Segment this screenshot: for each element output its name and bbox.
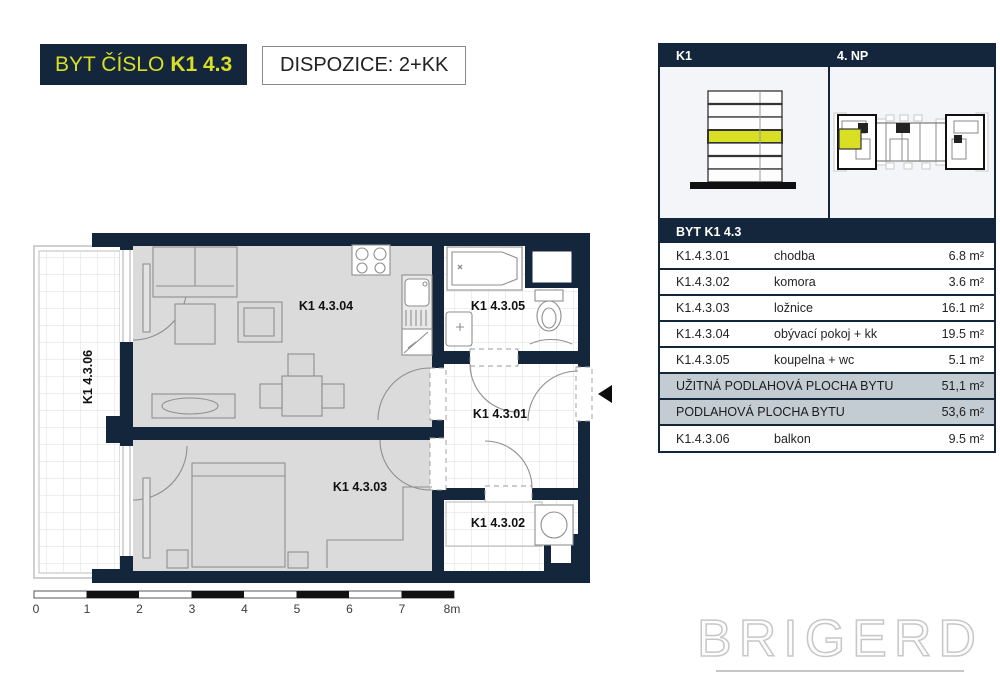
highlighted-unit — [839, 129, 861, 149]
shaft — [532, 251, 572, 283]
building-base — [690, 182, 796, 189]
highlighted-floor — [708, 130, 782, 143]
locator-diagrams — [660, 67, 994, 220]
building-elevation-cell — [660, 67, 830, 218]
disposition-badge: DISPOZICE: 2+KK — [262, 46, 466, 85]
info-panel: K1 4. NP — [658, 43, 996, 453]
nightstand-symbol — [167, 550, 188, 568]
site-plan-cell — [830, 67, 998, 218]
room-label-storage: K1 4.3.02 — [471, 516, 525, 530]
scale-tick: 2 — [136, 602, 143, 616]
area-row: K1.4.3.01 chodba 6.8 m² — [660, 243, 994, 269]
table-title: BYT K1 4.3 — [676, 225, 741, 239]
scale-tick: 6 — [346, 602, 353, 616]
room-label-living: K1 4.3.04 — [299, 299, 353, 313]
apartment-number: K1 4.3 — [170, 53, 232, 77]
area-row: K1.4.3.06 balkon 9.5 m² — [660, 425, 994, 451]
armchair-symbol — [175, 304, 215, 344]
area-row: K1.4.3.03 ložnice 16.1 m² — [660, 295, 994, 321]
washbasin-symbol — [446, 312, 472, 346]
room-label-bedroom: K1 4.3.03 — [333, 480, 387, 494]
table-title-bar: BYT K1 4.3 — [660, 220, 994, 243]
room-label-balcony: K1 4.3.06 — [81, 350, 95, 404]
room-label-bathroom: K1 4.3.05 — [471, 299, 525, 313]
sink-symbol — [405, 279, 429, 306]
disposition-label: DISPOZICE: 2+KK — [280, 54, 448, 77]
floor-label: 4. NP — [837, 49, 868, 63]
dining-table-symbol — [282, 376, 322, 416]
building-elevation-diagram — [660, 67, 826, 216]
scale-tick: 0 — [33, 602, 40, 616]
radiator-symbol — [143, 478, 150, 558]
brand-logo-text: BRIGERD — [697, 610, 983, 668]
scale-tick: 7 — [399, 602, 406, 616]
page: BYT ČÍSLO K1 4.3 DISPOZICE: 2+KK K1 4. N… — [0, 0, 1000, 698]
area-row: K1.4.3.02 komora 3.6 m² — [660, 269, 994, 295]
balcony-area — [34, 246, 122, 578]
building-label: K1 — [676, 49, 692, 63]
panel-header: K1 4. NP — [660, 45, 994, 67]
summary-row: PODLAHOVÁ PLOCHA BYTU 53,6 m² — [660, 399, 994, 425]
radiator-symbol — [143, 264, 150, 332]
toilet-tank-symbol — [535, 290, 563, 301]
summary-row: UŽITNÁ PODLAHOVÁ PLOCHA BYTU 51,1 m² — [660, 373, 994, 399]
scale-bar: 0 1 2 3 4 5 6 7 8m — [33, 588, 463, 618]
area-row: K1.4.3.04 obývací pokoj + kk 19.5 m² — [660, 321, 994, 347]
scale-tick: 4 — [241, 602, 248, 616]
hall-floor — [444, 364, 578, 488]
scale-tick: 5 — [294, 602, 301, 616]
scale-tick: 3 — [189, 602, 196, 616]
floor-plan: K1 4.3.04 K1 4.3.03 K1 4.3.05 K1 4.3.01 … — [30, 224, 615, 594]
area-table: K1.4.3.01 chodba 6.8 m² K1.4.3.02 komora… — [660, 243, 994, 451]
entry-arrow-icon — [598, 385, 612, 403]
nightstand-symbol — [288, 552, 308, 568]
brand-watermark: BRIGERD — [690, 598, 990, 683]
scale-tick: 1 — [84, 602, 91, 616]
apartment-title-badge: BYT ČÍSLO K1 4.3 — [40, 44, 247, 85]
toilet-bowl-symbol — [537, 301, 561, 331]
apartment-title-prefix: BYT ČÍSLO — [55, 53, 164, 77]
room-label-hall: K1 4.3.01 — [473, 407, 527, 421]
site-plan-diagram — [830, 67, 992, 216]
scale-tick: 8m — [444, 602, 461, 616]
area-row: K1.4.3.05 koupelna + wc 5.1 m² — [660, 347, 994, 373]
bed-symbol — [192, 463, 285, 567]
